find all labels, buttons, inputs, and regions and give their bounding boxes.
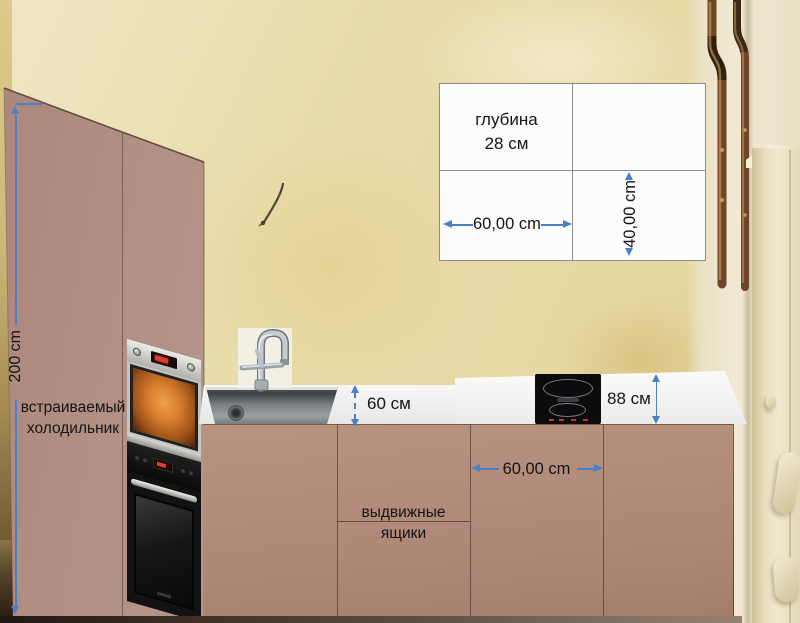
- dim-line: [15, 115, 17, 325]
- cooktop-indicator: [549, 419, 554, 421]
- cabinet-divider-3: [603, 425, 604, 618]
- oven-knob: [135, 455, 139, 460]
- cooktop-control-strip: [557, 398, 579, 402]
- arrow-up-icon: [11, 106, 19, 114]
- dim-line: [15, 400, 17, 606]
- arrow-left-icon: [471, 464, 480, 472]
- drawers-label-line2: ящики: [337, 524, 470, 545]
- tall-cabinet-height-label-wrap: 200 cm: [4, 330, 28, 396]
- cabinet-width-label: 60,00 cm: [498, 460, 575, 479]
- dim-line: [541, 224, 563, 226]
- arrow-down-icon: [652, 416, 660, 424]
- faucet: [228, 318, 300, 392]
- fridge-label: встраиваемый холодильник: [20, 398, 126, 440]
- plinth-shadow: [0, 616, 742, 623]
- info-box-grid-hline: [440, 170, 705, 171]
- cooktop-zone-large: [543, 379, 593, 398]
- dim-line: [656, 381, 658, 417]
- door-molding-lower: [772, 555, 799, 603]
- arrow-right-icon: [594, 464, 603, 472]
- microwave-knob-left: [133, 347, 141, 357]
- door-frame-edge: [789, 150, 791, 623]
- oven: [127, 441, 201, 622]
- tall-cabinet-divider: [122, 133, 123, 620]
- oven-digits: [157, 462, 166, 469]
- dim-line: [480, 468, 499, 470]
- depth-label-line2: 28 см: [448, 132, 565, 156]
- door-frame-column: [752, 148, 800, 623]
- cooktop-zone-small: [549, 403, 586, 417]
- dim-dashed-line: [354, 392, 356, 420]
- depth-label-line1: глубина: [448, 108, 565, 132]
- drawers-label-line1: выдвижные: [337, 503, 470, 524]
- oven-display: [153, 457, 173, 473]
- info-box-grid-vline: [572, 84, 573, 260]
- width-dimension-label: 60,00 cm: [473, 215, 539, 234]
- microwave-display: [151, 351, 177, 369]
- kitchen-annotated-photo: глубина 28 см 60,00 cm 40,00 cm 200 cm: [0, 0, 800, 623]
- door-knob-small: [766, 395, 776, 409]
- oven-knob: [143, 458, 147, 463]
- cooktop-indicator: [571, 419, 576, 421]
- dim-line: [577, 468, 594, 470]
- cooktop-indicator: [559, 419, 564, 421]
- arrow-up-icon: [625, 172, 633, 180]
- sink-drain: [228, 405, 244, 421]
- oven-knob: [181, 468, 185, 473]
- dim-line: [451, 224, 473, 226]
- oven-knob: [189, 471, 193, 476]
- arrow-down-icon: [351, 419, 359, 427]
- countertop-right: [455, 371, 747, 424]
- arrow-down-icon: [11, 606, 19, 614]
- cooktop: [535, 374, 601, 424]
- arrow-down-icon: [625, 248, 633, 256]
- arrow-right-icon: [563, 220, 572, 228]
- height-dimension-label-wrap: 40,00 cm: [618, 180, 642, 246]
- dim-tick: [15, 103, 42, 105]
- cooktop-indicator: [583, 419, 588, 421]
- wall-crack: [253, 180, 301, 230]
- fridge-label-line1: встраиваемый: [20, 398, 126, 419]
- appliance-stack: [127, 339, 201, 622]
- sink: [206, 387, 338, 424]
- counter-height-label: 88 см: [607, 389, 651, 409]
- depth-label: глубина 28 см: [448, 108, 565, 156]
- microwave-knob-right: [187, 362, 195, 372]
- dimension-info-box: глубина 28 см 60,00 cm 40,00 cm: [439, 83, 706, 261]
- base-cabinet-right-edge: [733, 424, 735, 618]
- microwave-digits: [155, 355, 168, 364]
- fridge-label-line2: холодильник: [20, 419, 126, 440]
- tall-cabinet-height-label: 200 cm: [7, 330, 25, 382]
- height-dimension-label: 40,00 cm: [621, 180, 640, 248]
- counter-depth-label: 60 см: [367, 394, 411, 414]
